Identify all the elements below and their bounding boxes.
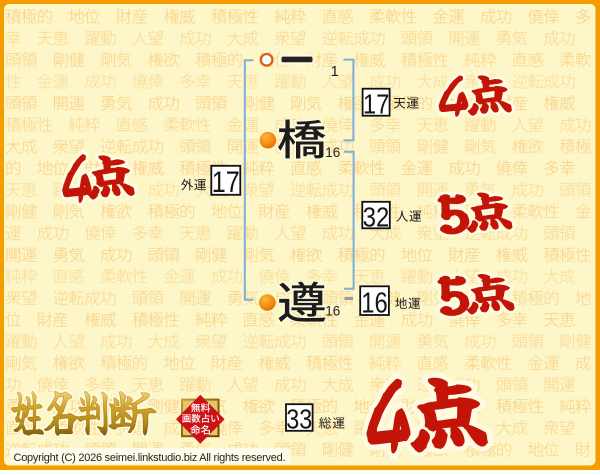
svg-text:17: 17: [363, 88, 390, 119]
svg-text:16: 16: [361, 287, 388, 319]
svg-text:32: 32: [363, 201, 390, 232]
svg-text:16: 16: [325, 303, 340, 318]
svg-text:1: 1: [331, 63, 339, 80]
svg-text:16: 16: [325, 145, 340, 160]
svg-text:33: 33: [286, 404, 312, 435]
svg-text:Copyright (C) 2026 seimei.link: Copyright (C) 2026 seimei.linkstudio.biz…: [14, 452, 286, 464]
svg-text:17: 17: [212, 166, 240, 199]
